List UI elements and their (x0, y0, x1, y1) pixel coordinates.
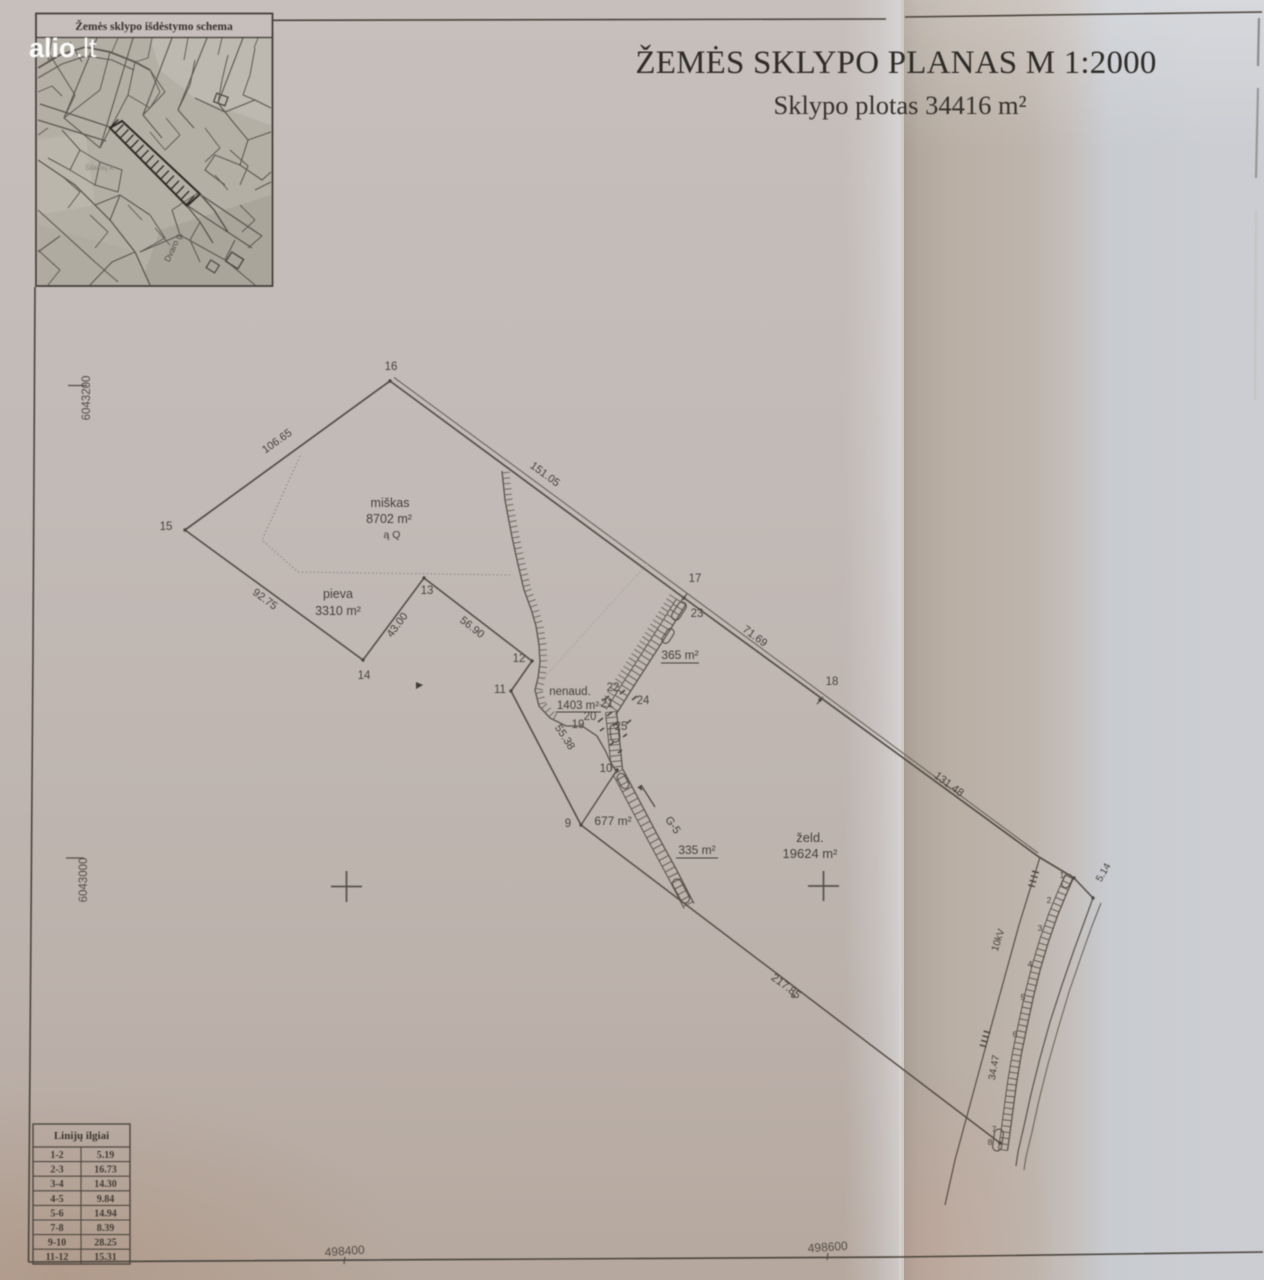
svg-text:151.05: 151.05 (528, 460, 562, 490)
svg-text:13: 13 (421, 585, 434, 597)
svg-text:2: 2 (1047, 895, 1052, 905)
svg-text:G-5: G-5 (662, 814, 682, 836)
svg-text:17: 17 (689, 573, 702, 585)
svg-text:5-6: 5-6 (50, 1208, 63, 1219)
svg-text:11-12: 11-12 (46, 1252, 69, 1263)
svg-text:6043000: 6043000 (78, 858, 90, 903)
svg-text:365 m²: 365 m² (661, 648, 698, 662)
svg-text:Sklypo plotas 34416 m²: Sklypo plotas 34416 m² (773, 90, 1026, 120)
svg-text:677 m²: 677 m² (594, 814, 631, 828)
svg-text:8: 8 (988, 1137, 993, 1147)
svg-text:56.90: 56.90 (457, 614, 486, 640)
svg-text:Žemės sklypo išdėstymo schema: Žemės sklypo išdėstymo schema (75, 19, 233, 33)
svg-text:1: 1 (1060, 870, 1065, 880)
svg-text:1-2: 1-2 (50, 1150, 63, 1161)
svg-text:6043200: 6043200 (81, 376, 93, 421)
svg-text:14.30: 14.30 (94, 1179, 117, 1190)
svg-text:3: 3 (1038, 923, 1043, 933)
svg-text:4-5: 4-5 (50, 1194, 63, 1205)
svg-text:3-4: 3-4 (50, 1179, 63, 1190)
svg-text:12: 12 (513, 653, 526, 665)
svg-text:alio.lt: alio.lt (29, 33, 97, 63)
svg-text:16: 16 (385, 361, 398, 373)
svg-text:5.14: 5.14 (1094, 861, 1113, 884)
svg-text:71.69: 71.69 (740, 624, 769, 650)
svg-text:22: 22 (607, 682, 620, 694)
svg-text:92.75: 92.75 (250, 587, 279, 613)
svg-text:10: 10 (600, 763, 613, 775)
svg-text:498600: 498600 (807, 1239, 848, 1256)
svg-text:3310 m²: 3310 m² (315, 604, 361, 618)
svg-text:14: 14 (358, 670, 371, 682)
svg-text:Šilainių k.: Šilainių k. (85, 163, 115, 172)
svg-text:7: 7 (992, 1124, 997, 1134)
svg-text:19: 19 (572, 719, 585, 731)
svg-text:19624 m²: 19624 m² (783, 846, 839, 861)
svg-text:34.47: 34.47 (987, 1054, 1002, 1081)
svg-text:4: 4 (1028, 959, 1033, 969)
svg-text:131.48: 131.48 (932, 770, 966, 800)
svg-text:18: 18 (826, 676, 839, 688)
svg-text:ŽEMĖS SKLYPO PLANAS M 1:2000: ŽEMĖS SKLYPO PLANAS M 1:2000 (635, 44, 1156, 81)
svg-text:ą Q: ą Q (384, 529, 401, 541)
svg-text:20: 20 (584, 711, 597, 723)
svg-text:14.94: 14.94 (94, 1208, 117, 1219)
svg-text:nenaud.: nenaud. (549, 686, 591, 698)
svg-text:15: 15 (160, 521, 173, 533)
svg-text:8.39: 8.39 (97, 1223, 115, 1234)
svg-text:pieva: pieva (323, 587, 353, 601)
svg-text:335 m²: 335 m² (678, 843, 715, 857)
svg-text:23: 23 (691, 608, 704, 620)
svg-text:106.65: 106.65 (260, 427, 294, 456)
svg-text:28.25: 28.25 (94, 1238, 117, 1249)
svg-text:16.73: 16.73 (94, 1165, 117, 1176)
svg-text:5: 5 (1021, 992, 1026, 1002)
svg-text:24: 24 (637, 695, 650, 707)
svg-text:9.84: 9.84 (97, 1194, 115, 1205)
svg-text:želd.: želd. (796, 830, 823, 845)
svg-text:15.31: 15.31 (94, 1252, 117, 1263)
svg-text:5.19: 5.19 (97, 1150, 115, 1161)
svg-text:10kV: 10kV (990, 927, 1008, 952)
svg-text:6: 6 (1013, 1029, 1018, 1039)
svg-text:498400: 498400 (324, 1243, 365, 1260)
svg-text:2-3: 2-3 (50, 1165, 63, 1176)
svg-text:217.85: 217.85 (769, 972, 803, 1002)
svg-text:7-8: 7-8 (50, 1223, 63, 1234)
svg-text:25: 25 (615, 721, 628, 733)
svg-text:miškas: miškas (371, 496, 410, 510)
svg-text:9: 9 (565, 818, 571, 830)
svg-text:21: 21 (601, 698, 614, 710)
svg-text:8702 m²: 8702 m² (366, 512, 412, 526)
svg-text:Linijų ilgiai: Linijų ilgiai (54, 1130, 109, 1142)
svg-text:9-10: 9-10 (48, 1238, 66, 1249)
svg-text:11: 11 (494, 684, 506, 696)
